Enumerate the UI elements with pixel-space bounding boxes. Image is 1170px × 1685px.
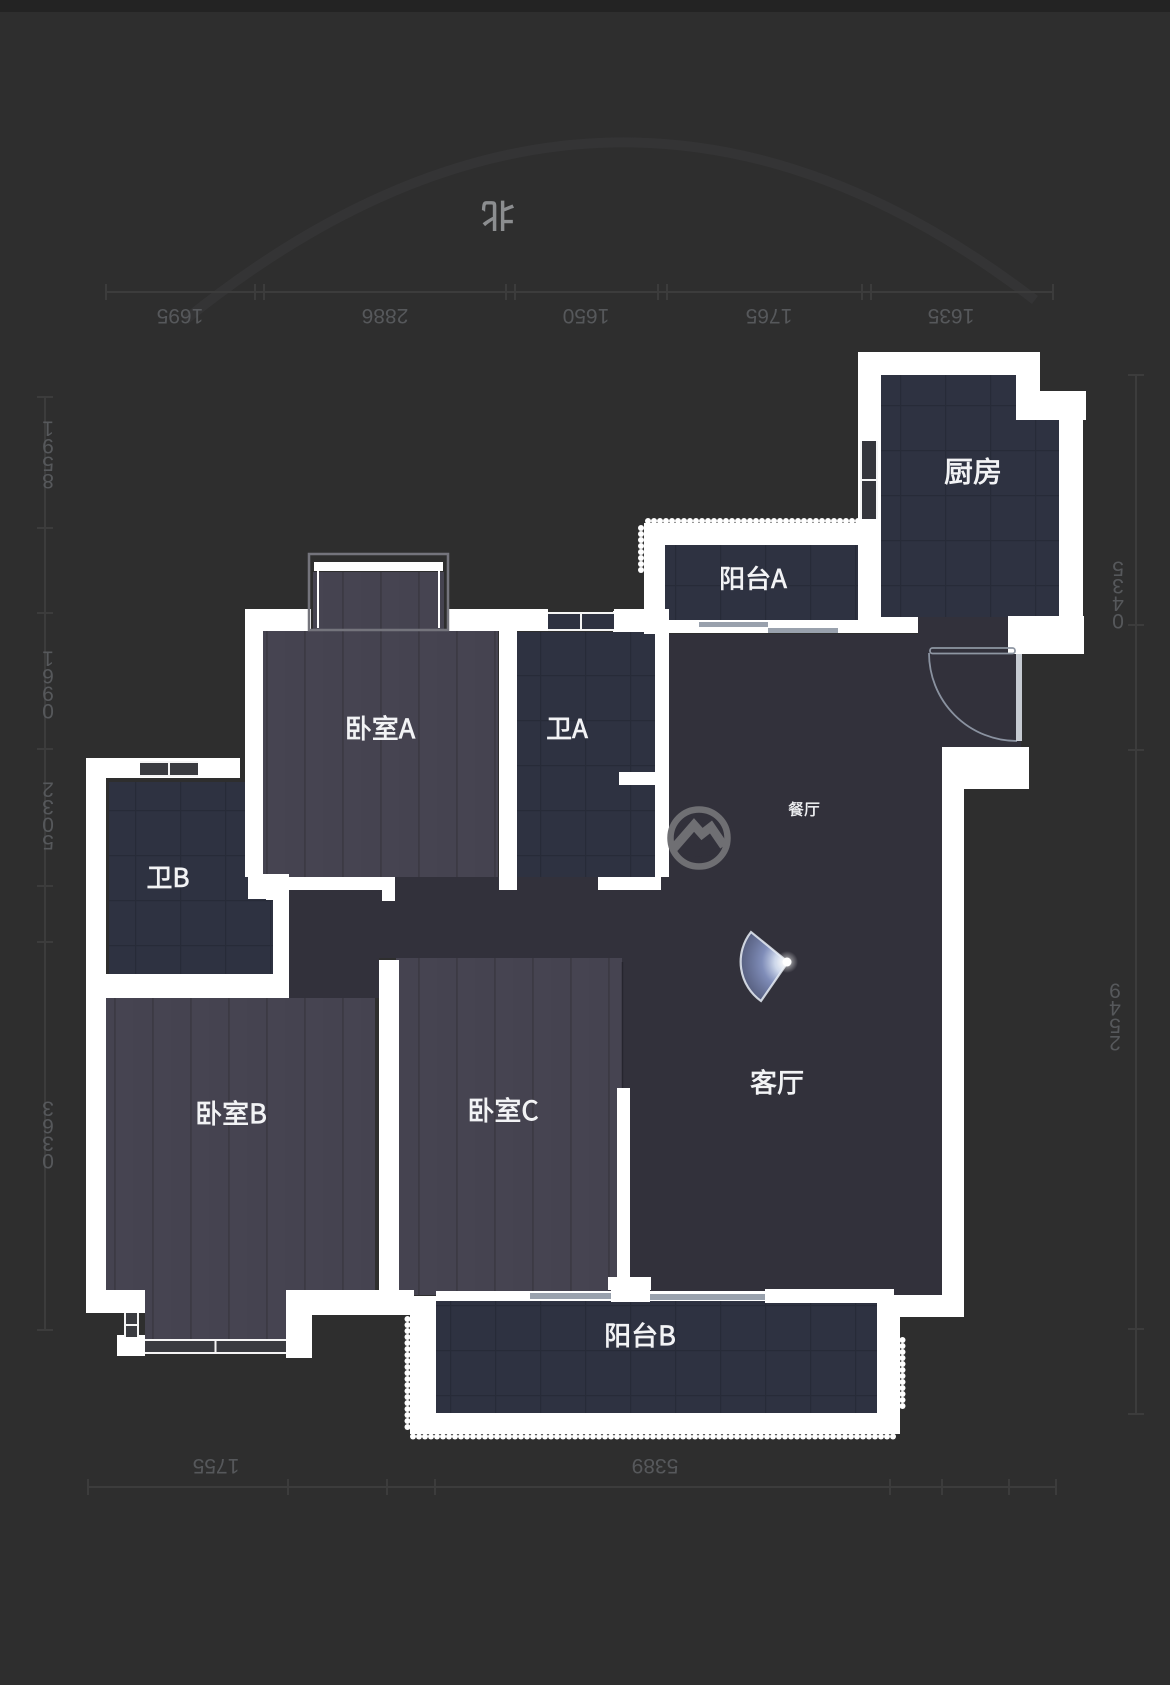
svg-text:0: 0 xyxy=(1112,609,1124,632)
svg-text:2: 2 xyxy=(1109,1031,1121,1054)
svg-text:1765: 1765 xyxy=(746,304,793,327)
svg-text:5389: 5389 xyxy=(632,1454,679,1477)
svg-text:2886: 2886 xyxy=(362,304,409,327)
svg-text:8: 8 xyxy=(42,469,54,492)
svg-text:0: 0 xyxy=(42,699,54,722)
svg-text:1695: 1695 xyxy=(157,304,204,327)
svg-text:5: 5 xyxy=(42,830,54,853)
svg-text:0: 0 xyxy=(42,1149,54,1172)
svg-text:1650: 1650 xyxy=(563,304,610,327)
svg-text:1755: 1755 xyxy=(193,1454,240,1477)
svg-text:1635: 1635 xyxy=(928,304,975,327)
